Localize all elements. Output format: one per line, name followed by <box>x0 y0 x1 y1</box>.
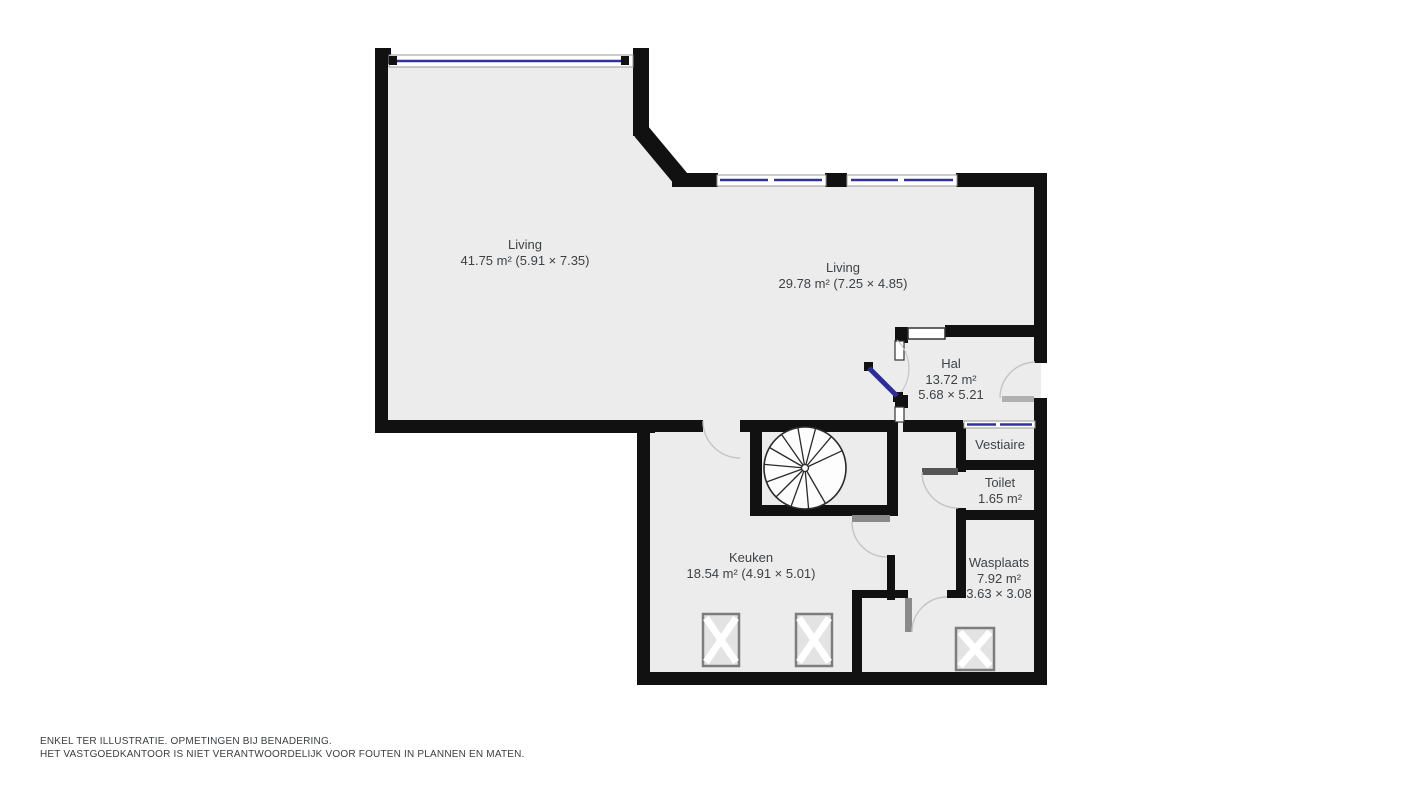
room-label-vestiaire: Vestiaire <box>975 437 1025 453</box>
room-detail: 29.78 m² (7.25 × 4.85) <box>779 276 908 292</box>
disclaimer: ENKEL TER ILLUSTRATIE. OPMETINGEN BIJ BE… <box>40 736 525 761</box>
disclaimer-line-1: ENKEL TER ILLUSTRATIE. OPMETINGEN BIJ BE… <box>40 736 525 749</box>
room-area: 1.65 m² <box>978 491 1022 507</box>
room-dims: 3.63 × 3.08 <box>966 586 1031 602</box>
room-detail: 41.75 m² (5.91 × 7.35) <box>461 253 590 269</box>
room-label-keuken: Keuken 18.54 m² (4.91 × 5.01) <box>687 550 816 581</box>
appliance-crossbox-icon <box>703 614 739 666</box>
room-label-toilet: Toilet 1.65 m² <box>978 475 1022 506</box>
room-name: Wasplaats <box>966 555 1031 571</box>
floorplan-page: Living 41.75 m² (5.91 × 7.35) Living 29.… <box>0 0 1422 800</box>
room-area: 13.72 m² <box>918 372 983 388</box>
room-label-hal: Hal 13.72 m² 5.68 × 5.21 <box>918 356 983 403</box>
appliance-crossbox-icon <box>796 614 832 666</box>
room-name: Living <box>779 260 908 276</box>
room-name: Toilet <box>978 475 1022 491</box>
room-area: 7.92 m² <box>966 571 1031 587</box>
room-name: Vestiaire <box>975 437 1025 453</box>
door-leaf <box>852 515 890 522</box>
spiral-staircase-icon <box>764 427 846 509</box>
disclaimer-line-2: HET VASTGOEDKANTOOR IS NIET VERANTWOORDE… <box>40 749 525 762</box>
room-name: Keuken <box>687 550 816 566</box>
appliance-crossbox-icon <box>956 628 994 670</box>
door-leaf <box>905 598 912 632</box>
room-name: Hal <box>918 356 983 372</box>
room-detail: 18.54 m² (4.91 × 5.01) <box>687 566 816 582</box>
room-label-wasplaats: Wasplaats 7.92 m² 3.63 × 3.08 <box>966 555 1031 602</box>
floorplan-drawing <box>0 0 1422 800</box>
room-name: Living <box>461 237 590 253</box>
door-leaf <box>922 468 958 475</box>
room-label-living-1: Living 41.75 m² (5.91 × 7.35) <box>461 237 590 268</box>
room-dims: 5.68 × 5.21 <box>918 387 983 403</box>
door-threshold <box>1002 396 1034 402</box>
room-label-living-2: Living 29.78 m² (7.25 × 4.85) <box>779 260 908 291</box>
